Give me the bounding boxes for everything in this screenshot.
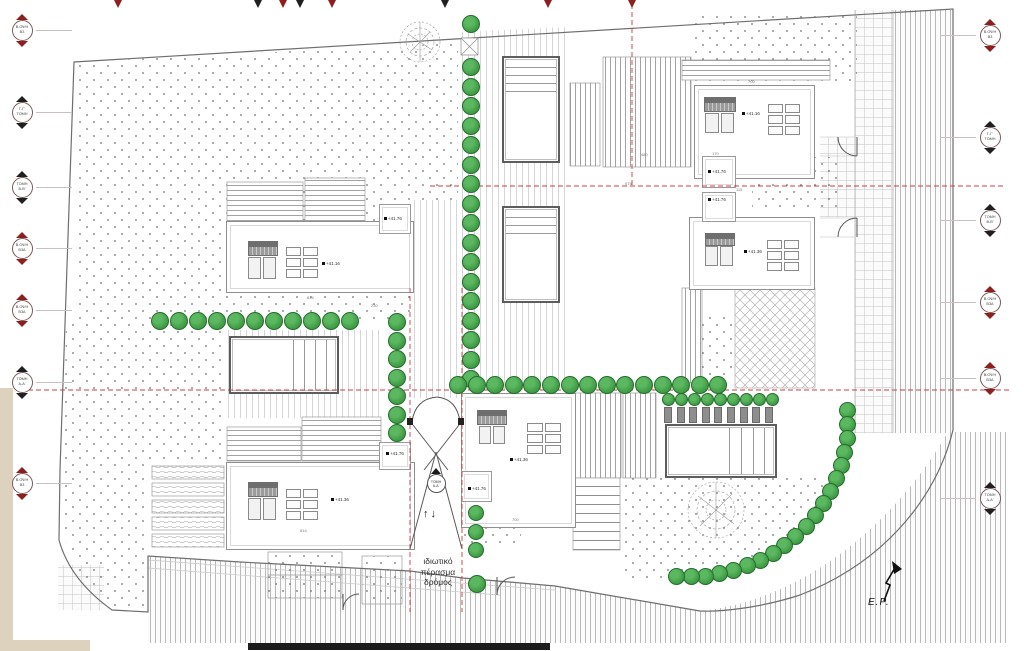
tree	[462, 175, 480, 193]
dimension-label: 115	[736, 187, 742, 192]
parking-post	[727, 407, 735, 423]
section-view-marker: Β.ΟΨΗΒ3Α	[8, 294, 36, 327]
marker-leader-line	[36, 310, 72, 311]
tree	[341, 312, 359, 330]
marker-triangle-bottom-icon	[984, 313, 996, 319]
tree	[303, 312, 321, 330]
marker-triangle-bottom-icon	[984, 231, 996, 237]
tree	[468, 524, 484, 540]
dimension-label: 230	[371, 303, 378, 308]
section-flag-icon	[328, 0, 336, 8]
spot-elevation-label: +41.76	[386, 451, 404, 456]
section-flag-icon	[441, 0, 449, 8]
elevation-flag-icon	[742, 112, 745, 115]
section-view-marker: ΤΟΜΗΑ-Α'	[976, 482, 1004, 515]
north-arrow	[884, 561, 902, 601]
section-view-marker: Β.ΟΨΗΒ3	[8, 14, 36, 47]
tree	[662, 393, 675, 406]
tree	[675, 393, 688, 406]
marker-bubble: Γ-Γ'ΤΟΜΗ	[980, 127, 1001, 148]
spot-elevation-label: +41.16	[742, 111, 760, 116]
tree	[462, 195, 480, 213]
marker-triangle-bottom-icon	[16, 123, 28, 129]
tree	[468, 542, 484, 558]
section-view-marker: Β.ΟΨΗΒ3Α	[976, 362, 1004, 395]
tree	[701, 393, 714, 406]
tree	[388, 313, 406, 331]
spot-elevation-label: +41.36	[510, 457, 528, 462]
elevation-flag-icon	[744, 250, 747, 253]
tree	[691, 376, 709, 394]
marker-leader-line	[36, 187, 72, 188]
spot-elevation-label: +41.76	[384, 216, 402, 221]
paper-edge-bottom-left	[0, 640, 90, 651]
tree	[246, 312, 264, 330]
tree	[462, 351, 480, 369]
north-reference-label: E.P.	[868, 597, 890, 608]
marker-leader-line	[940, 378, 976, 379]
marker-bubble: Β.ΟΨΗΒ3	[12, 20, 33, 41]
tree	[468, 575, 486, 593]
tree	[740, 393, 753, 406]
parking-post	[740, 407, 748, 423]
tree	[688, 393, 701, 406]
parking-post	[664, 407, 672, 423]
elevation-flag-icon	[386, 452, 389, 455]
dimension-label: 170	[712, 151, 719, 156]
section-view-marker: Γ-Γ'ΤΟΜΗ	[976, 121, 1004, 154]
tree	[561, 376, 579, 394]
tree	[462, 117, 480, 135]
tree	[468, 505, 484, 521]
marker-bubble: Β.ΟΨΗΒ3	[980, 25, 1001, 46]
dimension-label: 700	[748, 79, 755, 84]
existing-tree-scribbles	[400, 22, 744, 538]
marker-leader-line	[36, 248, 72, 249]
section-flag-icon	[114, 0, 122, 8]
marker-triangle-bottom-icon	[984, 148, 996, 154]
tree	[727, 393, 740, 406]
marker-triangle-bottom-icon	[16, 259, 28, 265]
marker-bubble: Γ-Γ'ΤΟΜΗ	[12, 102, 33, 123]
spot-elevation-label: +41.16	[322, 261, 340, 266]
tree	[388, 424, 406, 442]
section-flag-icon	[254, 0, 262, 8]
ramp-direction-arrows: ↑↓	[423, 508, 438, 520]
tree	[462, 97, 480, 115]
tree	[766, 393, 779, 406]
tree	[388, 406, 406, 424]
elevation-flag-icon	[468, 487, 471, 490]
tree	[505, 376, 523, 394]
ramp-section-marker: ΤΟΜΗ Α-Α'	[422, 468, 450, 493]
section-flag-icon	[628, 0, 636, 8]
tree	[753, 393, 766, 406]
marker-leader-line	[36, 30, 72, 31]
dimension-label: 480	[641, 152, 648, 157]
tree	[462, 78, 480, 96]
marker-bubble: ΤΟΜΗΑ-Α'	[980, 488, 1001, 509]
spot-elevation-label: +41.76	[708, 197, 726, 202]
section-view-marker: Γ-Γ'ΤΟΜΗ	[8, 96, 36, 129]
section-view-marker: ΤΟΜΗΒ-Β'	[976, 204, 1004, 237]
tree	[462, 214, 480, 232]
section-view-marker: Β.ΟΨΗΒ3Α	[8, 232, 36, 265]
parking-post	[765, 407, 773, 423]
tree	[462, 273, 480, 291]
marker-leader-line	[36, 483, 72, 484]
tree	[462, 234, 480, 252]
tree	[462, 58, 480, 76]
marker-triangle-bottom-icon	[16, 321, 28, 327]
dimension-label: 575	[625, 181, 632, 186]
tree	[227, 312, 245, 330]
tree	[462, 312, 480, 330]
tree	[462, 331, 480, 349]
section-view-marker: Β.ΟΨΗΒ3	[976, 19, 1004, 52]
dimension-label: 700	[512, 517, 519, 522]
marker-leader-line	[940, 220, 976, 221]
tree	[265, 312, 283, 330]
spot-elevation-label: +41.76	[468, 486, 486, 491]
tree	[322, 312, 340, 330]
marker-leader-line	[36, 112, 72, 113]
parking-post	[702, 407, 710, 423]
tree	[462, 253, 480, 271]
tree	[635, 376, 653, 394]
parking-post	[677, 407, 685, 423]
tree	[462, 156, 480, 174]
spot-elevation-label: +41.76	[708, 169, 726, 174]
tree	[449, 376, 467, 394]
section-view-marker: Β.ΟΨΗΒ3	[8, 467, 36, 500]
tree	[462, 15, 480, 33]
tree	[468, 376, 486, 394]
marker-bubble: Β.ΟΨΗΒ3	[12, 473, 33, 494]
marker-triangle-bottom-icon	[984, 46, 996, 52]
paper-edge-left	[0, 388, 13, 651]
marker-bubble: ΤΟΜΗΒ-Β'	[980, 210, 1001, 231]
dimension-label: 814	[307, 295, 314, 300]
spot-elevation-label: +41.36	[744, 249, 762, 254]
tree	[654, 376, 672, 394]
dimension-label: 814	[300, 528, 307, 533]
elevation-flag-icon	[322, 262, 325, 265]
marker-triangle-bottom-icon	[984, 509, 996, 515]
tree	[189, 312, 207, 330]
parking-post	[714, 407, 722, 423]
tree	[388, 387, 406, 405]
site-plan-canvas: ιδιωτικό πέρασμα δρόμος ↑↓ ΤΟΜΗ Α-Α' E.P…	[0, 0, 1024, 651]
section-view-marker: ΤΟΜΗΒ-Β'	[8, 171, 36, 204]
elevation-flag-icon	[331, 498, 334, 501]
parking-post	[689, 407, 697, 423]
marker-bubble: Β.ΟΨΗΒ3Α	[980, 292, 1001, 313]
marker-triangle-bottom-icon	[984, 389, 996, 395]
bottom-wall-bar	[248, 643, 550, 650]
marker-leader-line	[940, 498, 976, 499]
tree	[542, 376, 560, 394]
tree	[284, 312, 302, 330]
tree	[170, 312, 188, 330]
spot-elevation-label: +41.36	[331, 497, 349, 502]
marker-leader-line	[36, 382, 72, 383]
tree	[388, 350, 406, 368]
marker-bubble: Β.ΟΨΗΒ3Α	[12, 238, 33, 259]
marker-triangle-bottom-icon	[16, 393, 28, 399]
tree	[714, 393, 727, 406]
tree	[462, 292, 480, 310]
red-grid-lines	[28, 4, 1012, 612]
section-flag-icon	[279, 0, 287, 8]
marker-bubble: ΤΟΜΗΑ-Α'	[12, 372, 33, 393]
marker-bubble: ΤΟΜΗΒ-Β'	[12, 177, 33, 198]
tree	[208, 312, 226, 330]
marker-leader-line	[940, 137, 976, 138]
planter-cross-box	[461, 38, 478, 55]
section-view-marker: Β.ΟΨΗΒ3Α	[976, 286, 1004, 319]
marker-triangle-bottom-icon	[16, 494, 28, 500]
parking-post	[752, 407, 760, 423]
marker-bubble: Β.ΟΨΗΒ3Α	[980, 368, 1001, 389]
marker-triangle-bottom-icon	[16, 41, 28, 47]
marker-leader-line	[940, 302, 976, 303]
elevation-flag-icon	[510, 458, 513, 461]
elevation-flag-icon	[384, 217, 387, 220]
section-flag-icon	[544, 0, 552, 8]
tree	[388, 369, 406, 387]
elevation-flag-icon	[708, 170, 711, 173]
private-road-label: ιδιωτικό πέρασμα δρόμος	[398, 556, 478, 588]
tree	[598, 376, 616, 394]
section-view-marker: ΤΟΜΗΑ-Α'	[8, 366, 36, 399]
tree	[388, 332, 406, 350]
tree	[151, 312, 169, 330]
marker-bubble: Β.ΟΨΗΒ3Α	[12, 300, 33, 321]
marker-leader-line	[940, 35, 976, 36]
section-flag-icon	[296, 0, 304, 8]
tree	[462, 136, 480, 154]
elevation-flag-icon	[708, 198, 711, 201]
marker-triangle-bottom-icon	[16, 198, 28, 204]
